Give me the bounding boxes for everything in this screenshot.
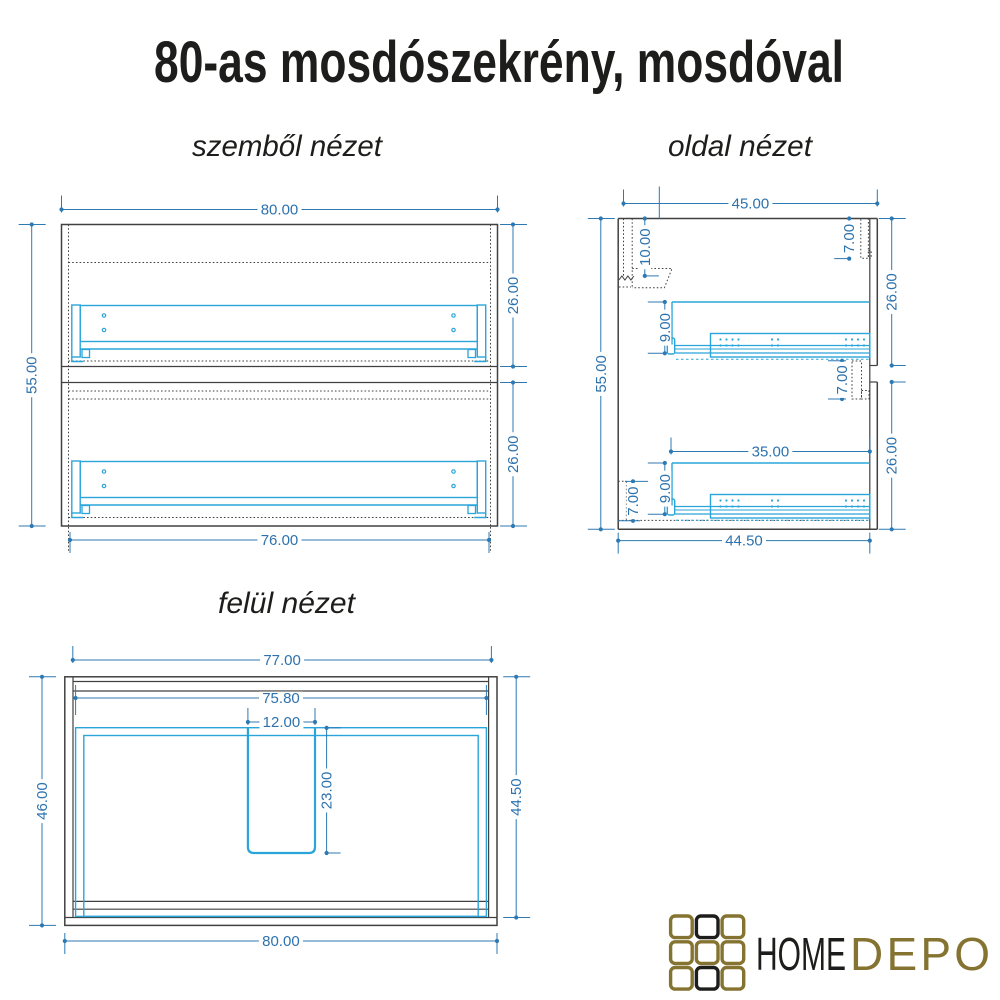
svg-text:szemből nézet: szemből nézet (192, 130, 384, 163)
svg-text:44.50: 44.50 (508, 778, 525, 816)
svg-text:46.00: 46.00 (34, 782, 51, 820)
svg-text:7.00: 7.00 (625, 486, 642, 515)
svg-text:75.80: 75.80 (262, 690, 300, 707)
svg-text:9.00: 9.00 (657, 313, 674, 342)
svg-text:9.00: 9.00 (657, 474, 674, 503)
svg-text:7.00: 7.00 (834, 365, 851, 394)
svg-text:80-as mosdószekrény, mosdóval: 80-as mosdószekrény, mosdóval (154, 30, 844, 95)
svg-text:7.00: 7.00 (841, 224, 858, 253)
svg-text:77.00: 77.00 (263, 652, 301, 669)
svg-text:26.00: 26.00 (884, 437, 901, 475)
svg-text:26.00: 26.00 (505, 277, 522, 315)
svg-text:26.00: 26.00 (884, 273, 901, 311)
svg-text:10.00: 10.00 (637, 228, 654, 266)
svg-text:HOME: HOME (756, 928, 846, 980)
svg-text:44.50: 44.50 (725, 533, 763, 550)
svg-text:55.00: 55.00 (24, 356, 41, 394)
svg-text:55.00: 55.00 (593, 355, 610, 393)
svg-text:35.00: 35.00 (752, 444, 790, 461)
svg-text:DEPO: DEPO (850, 928, 990, 980)
svg-text:12.00: 12.00 (263, 714, 301, 731)
svg-text:45.00: 45.00 (732, 196, 770, 213)
svg-text:26.00: 26.00 (505, 435, 522, 473)
svg-text:80.00: 80.00 (262, 933, 300, 950)
svg-text:80.00: 80.00 (261, 202, 299, 219)
svg-text:76.00: 76.00 (261, 532, 299, 549)
svg-text:oldal nézet: oldal nézet (668, 130, 814, 163)
svg-text:felül nézet: felül nézet (218, 587, 357, 620)
svg-text:23.00: 23.00 (319, 772, 336, 810)
